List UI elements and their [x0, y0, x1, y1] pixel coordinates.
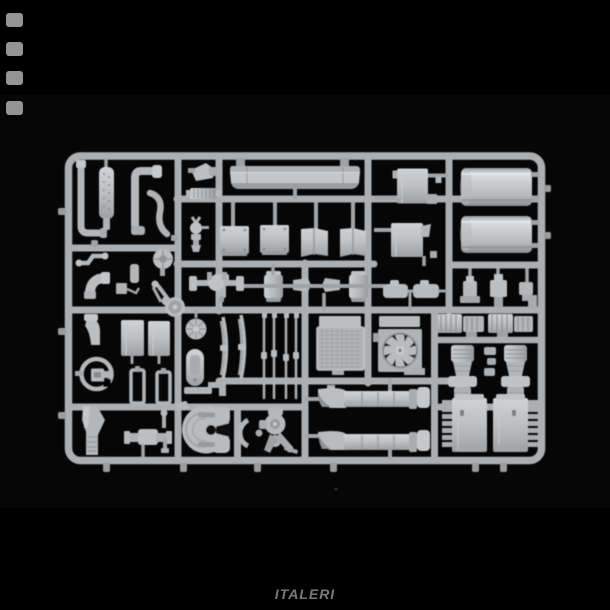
svg-text:ITALERI: ITALERI: [275, 586, 336, 602]
